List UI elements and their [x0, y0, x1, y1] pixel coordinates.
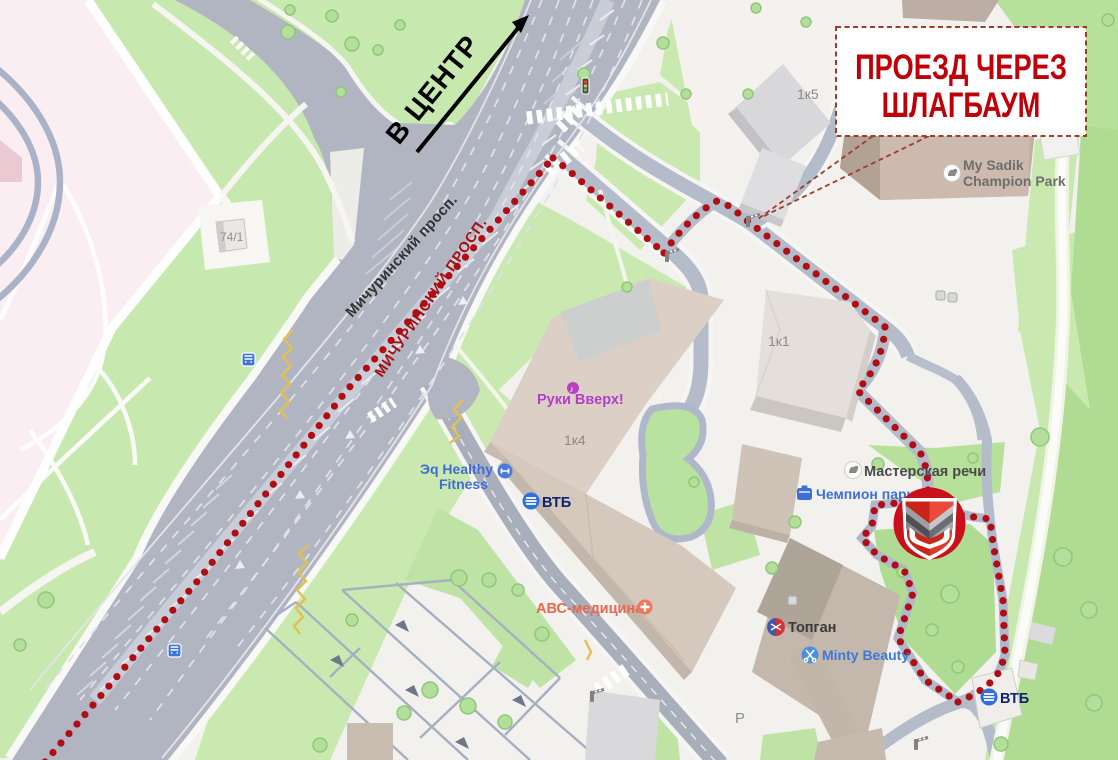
svg-text:ВТБ: ВТБ: [1000, 691, 1029, 707]
svg-text:Мастерская речи: Мастерская речи: [864, 464, 986, 480]
svg-text:Топган: Топган: [788, 620, 836, 636]
svg-text:1к5: 1к5: [797, 86, 819, 102]
svg-text:74/1: 74/1: [220, 230, 244, 244]
svg-text:ШЛАГБАУМ: ШЛАГБАУМ: [882, 86, 1041, 125]
svg-text:ВТБ: ВТБ: [542, 495, 571, 511]
svg-text:Чемпион парк: Чемпион парк: [816, 486, 915, 502]
svg-text:1к4: 1к4: [564, 432, 586, 448]
svg-text:ПРОЕЗД ЧЕРЕЗ: ПРОЕЗД ЧЕРЕЗ: [855, 48, 1067, 87]
svg-text:P: P: [735, 710, 745, 727]
svg-text:Minty Beauty: Minty Beauty: [822, 647, 909, 663]
svg-text:Fitness: Fitness: [439, 476, 488, 492]
svg-text:My Sadik: My Sadik: [963, 157, 1024, 173]
svg-text:АВС-медицина: АВС-медицина: [536, 601, 644, 617]
svg-text:1к1: 1к1: [768, 333, 790, 349]
svg-text:Champion Park: Champion Park: [963, 173, 1066, 189]
svg-text:Руки Вверх!: Руки Вверх!: [537, 392, 624, 408]
svg-text:Эq Healthy: Эq Healthy: [420, 461, 493, 477]
